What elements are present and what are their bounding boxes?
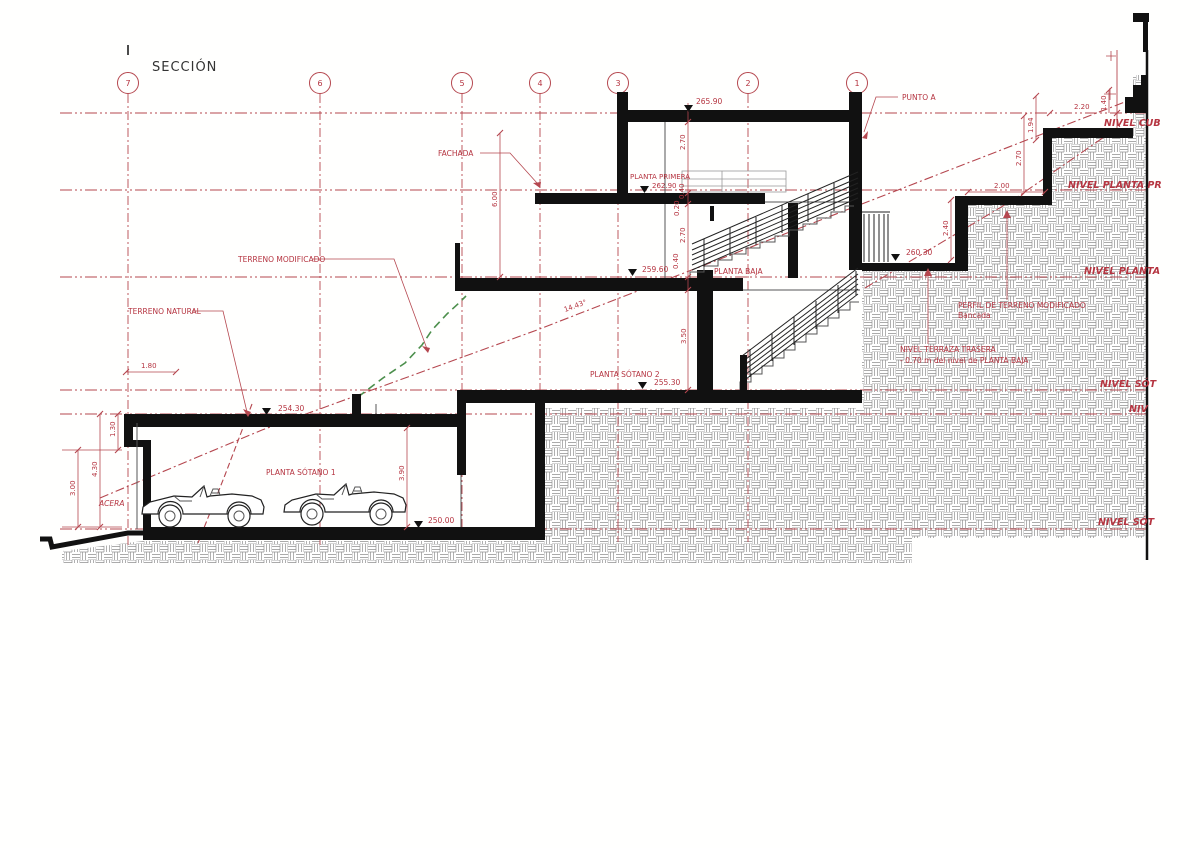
svg-text:PERFIL DE TERRENO MODIFICADO: PERFIL DE TERRENO MODIFICADO <box>958 301 1086 310</box>
svg-text:259.60: 259.60 <box>642 265 668 274</box>
grid-bubble-4: 4 <box>530 73 551 94</box>
terrain-modified-green-line <box>358 296 466 397</box>
dim-270-a: 2.70 <box>679 134 687 150</box>
dim-194: 1.94 <box>1027 117 1035 133</box>
elevation-sotano-1: 250.00 <box>414 516 454 528</box>
label-planta-sotano-2: PLANTA SÓTANO 2 <box>590 370 660 379</box>
dim-200: 2.00 <box>994 182 1010 190</box>
svg-text:265.90: 265.90 <box>696 97 722 106</box>
svg-text:260.30: 260.30 <box>906 248 932 257</box>
stairs-lower-flight <box>740 268 859 390</box>
dim-040-b: 0.40 <box>672 253 680 269</box>
svg-text:3: 3 <box>615 79 620 88</box>
dim-040-a: 0.40 <box>678 183 686 199</box>
dim-130: 1.30 <box>109 421 117 437</box>
section-drawing-sheet: 7 6 5 4 3 2 1 <box>0 0 1200 848</box>
dim-600: 6.00 <box>491 191 499 207</box>
section-drawing: 7 6 5 4 3 2 1 <box>0 0 1200 848</box>
dim-300: 3.00 <box>69 480 77 496</box>
svg-text:FACHADA: FACHADA <box>438 149 474 158</box>
svg-text:262.90: 262.90 <box>652 182 677 190</box>
terrace-railing <box>862 212 890 262</box>
callout-punto-a: PUNTO A <box>862 93 936 139</box>
svg-text:250.00: 250.00 <box>428 516 454 525</box>
level-label-intermedio: NIV <box>1129 404 1148 415</box>
dim-020: 0.20 <box>673 200 681 216</box>
callout-terreno-modificado: TERRENO MODIFICADO <box>237 255 430 353</box>
dim-180: 1.80 <box>141 362 157 370</box>
dim-140: 1.40 <box>1100 95 1108 111</box>
label-acera: ACERA <box>98 499 124 508</box>
callout-fachada: FACHADA <box>438 149 541 188</box>
furniture-outline <box>682 171 786 192</box>
car-convertible-1 <box>142 486 264 527</box>
label-planta-primera: PLANTA PRIMERA <box>630 173 690 181</box>
level-label-sotano-2: NIVEL SÓT <box>1100 378 1158 390</box>
svg-text:1: 1 <box>854 79 859 88</box>
label-planta-sotano-1: PLANTA SÓTANO 1 <box>266 468 336 477</box>
svg-text:NIVEL TERRAZA TRASERA: NIVEL TERRAZA TRASERA <box>900 345 997 354</box>
elevation-terreno: 254.30 <box>262 404 304 415</box>
svg-text:Bancada: Bancada <box>958 311 991 320</box>
level-label-sotano-1: NIVEL SÓT <box>1098 516 1156 528</box>
label-planta-baja: PLANTA BAJA <box>714 267 763 276</box>
grid-bubble-7: 7 <box>118 73 139 94</box>
dim-240: 2.40 <box>942 220 950 236</box>
svg-text:PUNTO A: PUNTO A <box>902 93 936 102</box>
svg-text:6: 6 <box>317 79 322 88</box>
svg-text:7: 7 <box>125 79 130 88</box>
dim-270-c: 2.70 <box>1015 150 1023 166</box>
svg-text:2: 2 <box>745 79 750 88</box>
svg-text:255.30: 255.30 <box>654 378 680 387</box>
car-convertible-2 <box>284 484 406 525</box>
dim-350: 3.50 <box>680 328 688 344</box>
svg-text:5: 5 <box>459 79 464 88</box>
grid-bubble-5: 5 <box>452 73 473 94</box>
svg-text:- 0.70 m del nivel de PLANTA B: - 0.70 m del nivel de PLANTA BAJA <box>900 356 1029 365</box>
grid-bubble-6: 6 <box>310 73 331 94</box>
grid-bubbles: 7 6 5 4 3 2 1 <box>118 73 868 94</box>
elevation-sotano-2: 255.30 <box>638 378 680 389</box>
dim-390: 3.90 <box>398 465 406 481</box>
level-label-planta-primera: NIVEL PLANTA PR <box>1068 180 1162 191</box>
svg-text:TERRENO MODIFICADO: TERRENO MODIFICADO <box>237 255 325 264</box>
svg-text:254.30: 254.30 <box>278 404 304 413</box>
elevation-cubierta: 265.90 <box>684 97 722 112</box>
grid-bubble-3: 3 <box>608 73 629 94</box>
dim-220: 2.20 <box>1074 103 1090 111</box>
level-label-planta-baja: NIVEL PLANTA <box>1084 266 1160 277</box>
svg-text:4: 4 <box>537 79 542 88</box>
grid-bubble-2: 2 <box>738 73 759 94</box>
svg-text:TERRENO NATURAL: TERRENO NATURAL <box>127 307 202 316</box>
stairs-upper-flight <box>690 172 858 278</box>
dim-270-b: 2.70 <box>679 227 687 243</box>
drawing-title: SECCIÓN <box>152 59 217 75</box>
dim-430: 4.30 <box>91 461 99 477</box>
elevation-terraza: 260.30 <box>891 248 932 261</box>
elevation-planta-baja: 259.60 <box>628 265 668 276</box>
grid-bubble-1: 1 <box>847 73 868 94</box>
level-label-cubierta: NIVEL CUB <box>1104 118 1161 129</box>
